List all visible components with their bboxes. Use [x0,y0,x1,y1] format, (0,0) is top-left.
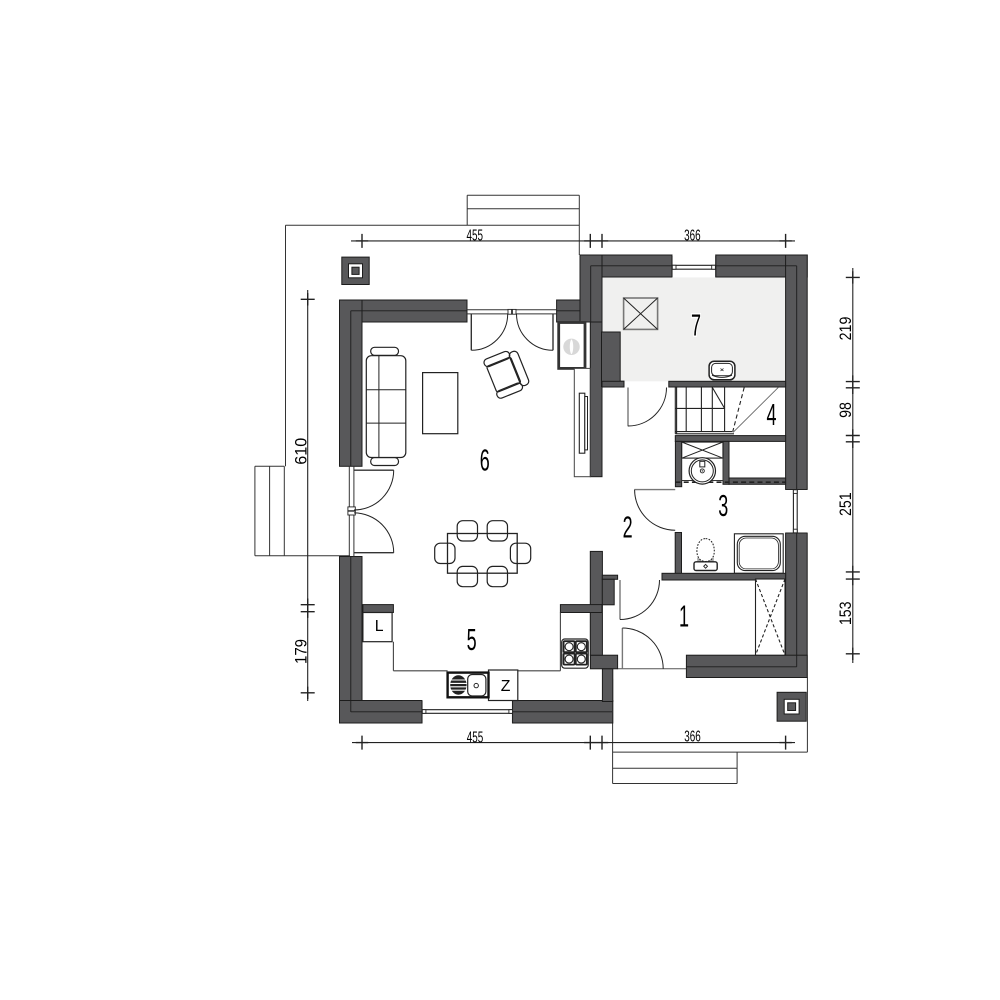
svg-text:7: 7 [691,309,701,343]
svg-text:5: 5 [467,623,477,657]
svg-text:2: 2 [623,511,633,545]
svg-text:1: 1 [679,600,689,634]
svg-text:251: 251 [837,492,855,516]
svg-text:366: 366 [684,226,700,244]
svg-text:153: 153 [837,601,855,625]
svg-text:179: 179 [293,639,311,664]
svg-text:455: 455 [467,728,483,746]
svg-text:366: 366 [684,727,700,745]
svg-text:98: 98 [837,402,855,418]
svg-text:3: 3 [718,489,728,523]
svg-text:4: 4 [767,398,777,432]
svg-text:Z: Z [501,678,511,695]
svg-text:L: L [375,618,384,635]
svg-text:455: 455 [467,226,483,244]
svg-text:219: 219 [837,317,855,341]
svg-text:610: 610 [292,438,310,465]
svg-text:6: 6 [480,444,490,478]
